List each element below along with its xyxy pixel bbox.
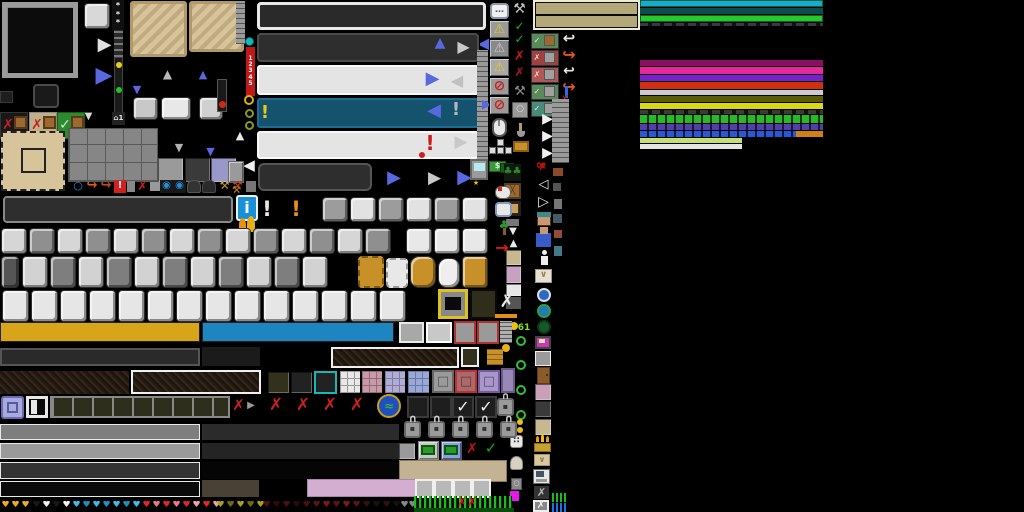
heart-darkred: ♥ <box>372 501 381 511</box>
block-cube-icon <box>544 52 555 63</box>
gold-underline <box>495 314 517 318</box>
pickaxe-icon: ⚒ <box>511 1 528 18</box>
keyboard-key <box>134 256 160 288</box>
slot-olive <box>470 289 497 319</box>
chevron-left-white: ◀ <box>243 156 255 176</box>
list-row-selected <box>257 98 479 128</box>
grid-slot-pink <box>362 371 382 393</box>
slot-gray <box>399 443 415 459</box>
check-icon: ✓ <box>533 87 541 97</box>
tiny-chip <box>553 214 562 223</box>
home-counter: ⌂1 <box>112 112 125 125</box>
keyboard-key <box>2 290 29 322</box>
gold-bed-icon <box>513 141 529 152</box>
heart-maroon: ♥ <box>342 501 351 511</box>
redo-arrow-icon: ↪ <box>85 179 99 192</box>
tiny-chip <box>553 168 563 176</box>
bossbar-green <box>640 15 823 22</box>
heart-olive: ♥ <box>226 501 235 511</box>
heart-maroon: ♥ <box>292 501 301 511</box>
heart-cyan: ♥ <box>122 501 131 511</box>
x-tile-light: ✗ <box>533 500 549 512</box>
tri-left-outline: ◁ <box>537 177 550 192</box>
dirt-bar-bordered <box>131 370 261 394</box>
slot-red-border <box>477 321 499 344</box>
slot-dark <box>185 158 210 182</box>
slot-teal-border <box>314 371 337 394</box>
bossbar-purple <box>640 75 823 81</box>
arrow-right-blue: ▶ <box>482 92 489 116</box>
heart-olive: ♥ <box>236 501 245 511</box>
heart-maroon: ♥ <box>332 501 341 511</box>
globe-icon-dark <box>537 320 551 334</box>
tooltip-row <box>536 3 637 14</box>
helmet-icon <box>202 180 216 193</box>
palm-trunk <box>503 228 506 235</box>
bossbar-dashed <box>640 23 823 26</box>
door-knob <box>546 374 548 376</box>
keyboard-key <box>50 256 76 288</box>
slot-gray <box>399 322 424 343</box>
book-icon <box>444 445 458 455</box>
list-chip <box>500 321 512 343</box>
dark-bar-wide <box>202 424 399 440</box>
lock-icon-shackle: ∩ <box>501 393 510 402</box>
keyboard-key <box>302 256 328 288</box>
tiny-chip <box>554 199 562 209</box>
x-icon-large: ✗ <box>266 396 286 416</box>
meter-green-small <box>552 493 568 502</box>
red-arrow-right: → <box>491 242 513 255</box>
arrow-down-blue: ▼ <box>130 84 144 95</box>
slider-knob-green <box>116 87 122 93</box>
heart-darkred: ♥ <box>362 501 371 511</box>
arrow-up-blue: ▲ <box>196 69 210 80</box>
button-lavender-inner <box>7 402 18 413</box>
x-icon-white: ✗ <box>497 288 517 316</box>
keyboard-key <box>1 228 27 254</box>
progress-bar-gold <box>0 322 200 342</box>
grid-slot-blue <box>408 371 429 393</box>
keyboard-key <box>225 228 251 254</box>
figure-body <box>541 256 548 265</box>
slot-dark <box>535 401 551 417</box>
panel-small <box>33 84 59 108</box>
play-arrow-blue: ▶ <box>93 62 115 90</box>
ring-green <box>516 385 526 395</box>
slot-pink <box>535 384 551 400</box>
gray-chip <box>150 182 160 191</box>
envelope-icon: ∨ <box>534 454 550 466</box>
heart-cyan: ♥ <box>82 501 91 511</box>
redo-arrow-orange: ↪ <box>556 79 582 95</box>
heart-maroon: ♥ <box>262 501 271 511</box>
vslider-knob-red <box>219 101 226 108</box>
button-blank <box>84 3 110 29</box>
check-icon: ✓ <box>513 20 526 32</box>
x-icon: ✗ <box>533 70 541 80</box>
redo-arrow-icon: ↪ <box>99 179 113 192</box>
gold-drop <box>502 344 510 352</box>
keyboard-key <box>292 290 319 322</box>
heart-cyan: ♥ <box>92 501 101 511</box>
heart-maroon: ♥ <box>352 501 361 511</box>
alert-mark-gray: ! <box>452 98 460 122</box>
x-icon-large: ✗ <box>293 396 313 416</box>
target-icon: ◉ <box>160 180 173 193</box>
candle-flame <box>541 434 544 442</box>
keyboard-key <box>205 290 232 322</box>
dark-bar-wide <box>202 443 399 459</box>
keyboard-key <box>89 290 116 322</box>
info-box <box>3 196 233 223</box>
bossbar-white-short <box>640 144 742 149</box>
arrow-up-white: ▲ <box>233 130 247 141</box>
heart-red: ♥ <box>152 501 161 511</box>
block-dark <box>202 347 260 366</box>
black-bar-wide <box>202 462 399 479</box>
counter-61: 61 <box>517 323 531 334</box>
heart-red: ♥ <box>162 501 171 511</box>
bell-icon <box>510 456 523 470</box>
gray-chip <box>246 181 256 192</box>
spark-icon: ★ <box>472 180 480 188</box>
heart-maroon: ♥ <box>322 501 331 511</box>
arrow-up-gray: ▲ <box>160 68 175 80</box>
grid-slot-white <box>340 371 360 393</box>
heart-red: ♥ <box>182 501 191 511</box>
bossbar-dashed <box>640 110 823 114</box>
text-field <box>257 2 486 30</box>
globe-button: ≈ <box>377 394 401 418</box>
keyboard-key <box>197 228 223 254</box>
lock-icon-shackle: ∩ <box>432 414 442 424</box>
keyboard-key <box>406 197 432 222</box>
info-icon: i <box>236 195 258 221</box>
bossbar-magenta-dark <box>640 60 823 66</box>
tooltip-row <box>536 16 637 27</box>
arrow-right-gray: ▶ <box>245 400 257 412</box>
keyboard-key <box>218 256 244 288</box>
keyboard-key <box>274 256 300 288</box>
monitor-screen <box>474 163 485 171</box>
hay-block-icon <box>487 349 503 365</box>
alert-box-icon: ! <box>114 180 126 193</box>
globe-icon <box>537 304 551 318</box>
gold-dot <box>517 419 523 425</box>
keyboard-key <box>22 256 48 288</box>
candles-base <box>534 443 551 452</box>
bossbar-purple-notched <box>640 124 823 130</box>
magnifier-icon: ○ <box>71 179 85 193</box>
keyboard-key <box>337 228 363 254</box>
button-small <box>133 97 158 120</box>
tri-right-outline: ▷ <box>537 194 550 211</box>
keyboard-key <box>169 228 195 254</box>
progress-bar-blue <box>202 322 394 342</box>
block-cube-icon <box>544 69 555 80</box>
warning-icon: ⚠ <box>490 21 509 38</box>
person-icon-body <box>536 233 551 247</box>
list-row-light <box>257 131 479 159</box>
keyboard-key <box>31 290 58 322</box>
x-tile-dark: ✗ <box>534 486 549 499</box>
keyboard-key <box>365 228 391 254</box>
slot-red-border <box>454 321 476 344</box>
slot-gray <box>158 158 183 182</box>
heart-olive: ♥ <box>246 501 255 511</box>
chat-bubble-icon: … <box>490 3 509 19</box>
x-icon: ✗ <box>231 397 246 414</box>
keyboard-key <box>378 197 404 222</box>
key-white-round <box>438 258 460 288</box>
key-gold-dashed <box>358 256 384 288</box>
heart-dark: ♥ <box>42 501 51 511</box>
key-chip: ○ <box>511 478 522 490</box>
gray-chip <box>127 181 135 192</box>
candle-flame <box>536 436 539 442</box>
keyboard-key <box>147 290 174 322</box>
progress-bar-dark <box>0 348 200 366</box>
hotbar-strip <box>50 396 230 418</box>
ladder-strip <box>552 99 569 163</box>
mute-chat-icon: ⊘ <box>490 97 509 114</box>
heart-maroon: ♥ <box>302 501 311 511</box>
slider-knob-yellow <box>116 62 122 68</box>
heart-pink: ♥ <box>192 501 201 511</box>
keyboard-key <box>263 290 290 322</box>
gray-bar-dark <box>0 462 200 479</box>
keycap-icon <box>489 147 496 154</box>
slot-bw <box>26 396 48 418</box>
keyboard-key <box>350 290 377 322</box>
slot-bw-stripe <box>31 400 37 414</box>
bar-pink <box>307 479 416 497</box>
slot-olive-bordered <box>461 347 479 367</box>
keyboard-key <box>78 256 104 288</box>
inventory-grid <box>68 128 158 182</box>
heart-darkred: ♥ <box>382 501 391 511</box>
slot-light <box>426 322 452 343</box>
alert-mark-yellow: ! <box>261 101 269 125</box>
mouse-wheel <box>498 120 500 126</box>
x-icon: ✗ <box>537 163 549 173</box>
ladder-strip <box>236 1 245 44</box>
alert-mark-orange: ! <box>292 196 300 222</box>
target-icon: ◉ <box>173 180 186 193</box>
heart-olive: ♥ <box>216 501 225 511</box>
keyboard-key <box>309 228 335 254</box>
mouse-button-red <box>498 187 502 191</box>
square-slot-red: □ <box>455 370 477 393</box>
keyboard-key <box>406 228 432 254</box>
gray-bar-light <box>0 443 200 459</box>
panel-large <box>2 2 78 78</box>
x-icon-double: ✗✗ <box>452 494 482 510</box>
gem-teal <box>245 37 254 46</box>
keyboard-key <box>113 228 139 254</box>
list-row-dark-short <box>258 163 372 191</box>
arrow-left-gray: ◀ <box>449 70 465 92</box>
key-white-dashed <box>386 258 408 288</box>
heart-cyan: ♥ <box>72 501 81 511</box>
tiny-chip <box>554 246 562 256</box>
keyboard-key <box>434 197 460 222</box>
heart-gold: ♥ <box>21 501 30 511</box>
play-arrow-white: ▶ <box>96 33 113 57</box>
redo-arrow-orange: ↪ <box>556 47 582 63</box>
lock-icon-shackle: ∩ <box>456 414 466 424</box>
computer-screen <box>536 471 544 477</box>
heart-dark: ♥ <box>62 501 71 511</box>
envelope-icon: ∨ <box>535 269 552 283</box>
heart-dark: ♥ <box>32 501 41 511</box>
slot-gray <box>535 351 551 366</box>
heart-maroon: ♥ <box>282 501 291 511</box>
bossbar-magenta <box>640 67 823 74</box>
tree-icon: ♣♣ <box>504 164 521 181</box>
keyboard-key <box>85 228 111 254</box>
tile-dark <box>0 91 13 103</box>
x-icon: ✗ <box>136 180 149 193</box>
keyboard-key <box>281 228 307 254</box>
x-icon: ✗ <box>513 66 526 79</box>
arrow-left-blue: ◀ <box>480 31 489 57</box>
ring-green <box>516 360 526 370</box>
alert-mark-white: ! <box>263 196 271 222</box>
arrow-right-gray: ▶ <box>427 167 442 190</box>
bossbar-yellow <box>640 103 823 109</box>
red-dot <box>419 152 425 158</box>
slot-olive <box>268 372 289 393</box>
helmet-icon <box>187 180 201 193</box>
heart-pink: ♥ <box>202 501 211 511</box>
gui-texture-atlas: * * *▶▶⌂11 2 3 4 5▲▲▼▼✗✗✓▼▼▲◀⚒○↪↪!✗◉◉⚒⚒!… <box>0 0 1024 512</box>
check-icon: ✓ <box>533 36 541 46</box>
list-row-light <box>257 65 479 95</box>
lock-icon-shackle: ∩ <box>408 414 418 424</box>
tiny-chip <box>553 183 561 191</box>
keyboard-key <box>462 228 488 254</box>
tiny-chip <box>554 230 562 238</box>
mute-chat-icon: ⊘ <box>490 78 509 95</box>
keyboard-key <box>118 290 145 322</box>
arrow-right-gray: ▶ <box>456 37 471 57</box>
keyboard-key <box>190 256 216 288</box>
square-slot-purple <box>501 368 515 393</box>
keyboard-key <box>246 256 272 288</box>
slot-yellow-inner <box>445 297 461 310</box>
grid-slot-lavender <box>385 371 405 393</box>
slot-dark <box>291 372 312 393</box>
keyboard-key <box>322 197 348 222</box>
x-icon-large: ✗ <box>347 396 367 416</box>
button-small <box>161 97 191 120</box>
keyboard-key <box>234 290 261 322</box>
arrow-left-blue: ◀ <box>426 99 442 123</box>
square-slot-gray: □ <box>432 370 454 393</box>
person-icon-head <box>540 227 548 234</box>
dirt-bar-bordered <box>331 347 459 368</box>
book-icon <box>421 445 435 455</box>
key-slot: ○ <box>512 102 528 118</box>
heart-cyan: ♥ <box>132 501 141 511</box>
arrow-down-blue: ▼ <box>204 146 217 157</box>
keycap-icon <box>497 147 504 154</box>
keyboard-key <box>434 228 460 254</box>
heart-red: ♥ <box>142 501 151 511</box>
dotted-rail <box>114 30 123 57</box>
computer-keys <box>536 479 547 482</box>
undo-arrow-white: ↩ <box>558 64 580 78</box>
keyboard-key <box>29 228 55 254</box>
arrow-right-blue: ▶ <box>424 67 441 91</box>
sword-icon: ⚒ <box>231 179 244 193</box>
keyboard-key <box>57 228 83 254</box>
block-olive <box>202 480 259 497</box>
head-hat <box>537 212 551 217</box>
bossbar-white <box>640 90 823 95</box>
key-gold-round <box>410 256 436 288</box>
arrow-right-gray: ▶ <box>453 131 469 154</box>
slot-tan <box>535 419 551 435</box>
bossbar-red <box>640 82 823 89</box>
shovel-blade <box>517 131 525 137</box>
keyboard-key <box>106 256 132 288</box>
bossbar-green-notched <box>640 115 823 123</box>
ring-olive <box>245 121 254 130</box>
bossbar-olive-dark <box>640 96 823 102</box>
keyboard-key-narrow <box>1 256 19 288</box>
heart-dark: ♥ <box>52 501 61 511</box>
keyboard-key <box>350 197 376 222</box>
keyboard-key <box>379 290 406 322</box>
keyboard-key <box>462 197 488 222</box>
undo-arrow-white: ↩ <box>558 31 580 47</box>
keyboard-key <box>321 290 348 322</box>
check-icon: ✓ <box>513 33 526 45</box>
bossbar-teal-dark <box>640 8 823 14</box>
bossbar-orange-tail <box>796 131 823 137</box>
meter-blue-small <box>552 503 568 512</box>
number-strip-1-5: 1 2 3 4 5 <box>246 47 255 96</box>
lock-icon-shackle: ∩ <box>504 414 514 424</box>
square-slot-purple: □ <box>478 370 500 393</box>
heart-maroon: ♥ <box>312 501 321 511</box>
ring-green <box>516 336 526 346</box>
x-icon-large: ✗ <box>320 396 340 416</box>
x-icon: ✗ <box>533 53 541 63</box>
keycap-icon <box>497 139 504 146</box>
keyboard-key <box>141 228 167 254</box>
keyboard-key <box>60 290 87 322</box>
black-bar <box>0 481 200 497</box>
chat-bubble-icon <box>495 202 512 217</box>
heart-gold: ♥ <box>1 501 10 511</box>
warning-icon: ⚠ <box>490 59 509 76</box>
globe-icon <box>537 288 551 302</box>
parchment-tile <box>130 1 187 57</box>
arrow-up-blue: ▲ <box>432 36 448 50</box>
crate-icon <box>14 116 27 129</box>
sparkle-strip: * * * <box>112 0 124 30</box>
door-icon <box>537 367 550 384</box>
block-cube-icon <box>544 86 555 97</box>
lock-icon-shackle: ∩ <box>480 414 490 424</box>
pickaxe-icon: ⚒ <box>512 84 528 100</box>
keyboard-key <box>176 290 203 322</box>
gold-dot <box>517 427 523 433</box>
